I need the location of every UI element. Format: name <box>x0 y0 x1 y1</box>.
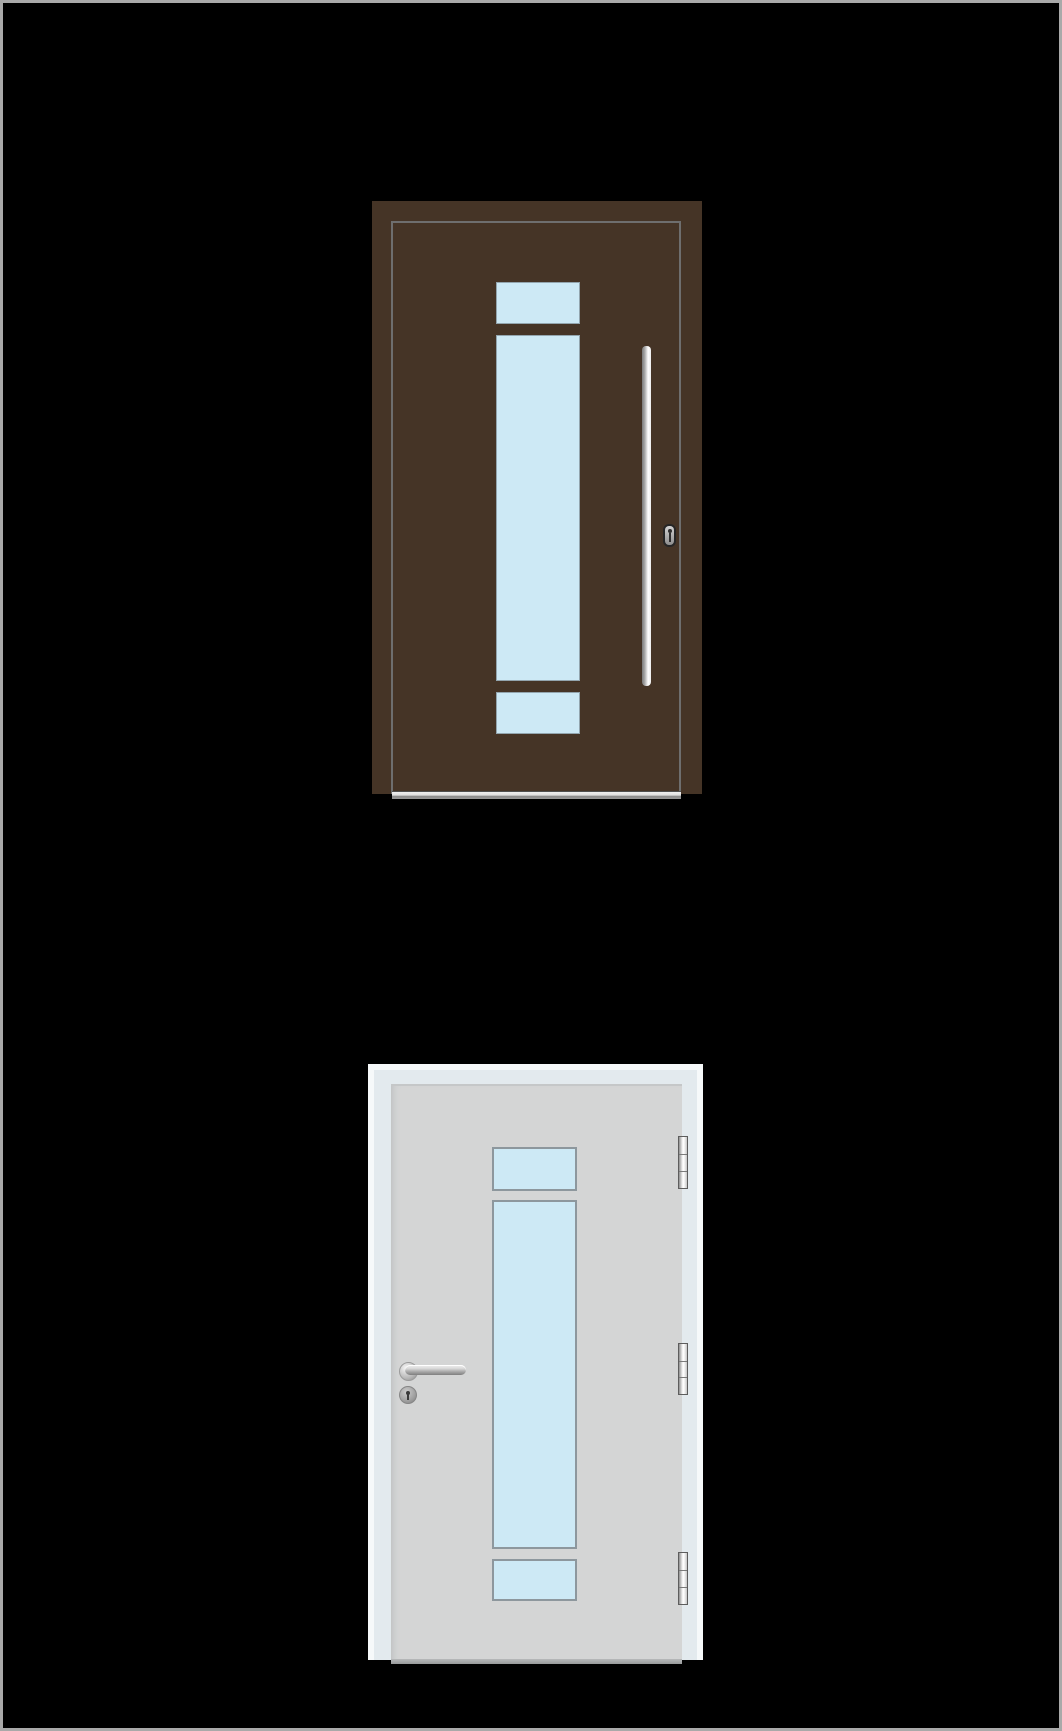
hinge <box>678 1552 688 1605</box>
hinge-knuckle-line <box>679 1361 687 1362</box>
glass-panel <box>496 692 580 734</box>
hinge <box>678 1136 688 1189</box>
glass-panel <box>492 1200 577 1549</box>
keyhole-slot-icon <box>407 1394 409 1400</box>
lever-handle <box>405 1365 466 1375</box>
interior-door-bottom-edge <box>391 1659 682 1664</box>
hinge-knuckle-line <box>679 1587 687 1588</box>
threshold-sill <box>392 791 681 799</box>
glass-panel <box>492 1147 577 1191</box>
keyhole-escutcheon <box>399 1386 417 1404</box>
glass-panel <box>496 335 580 681</box>
lock-cylinder <box>663 524 676 547</box>
illustration-canvas <box>0 0 1062 1731</box>
pull-bar-handle <box>642 346 651 686</box>
hinge-knuckle-line <box>679 1570 687 1571</box>
keyhole-slot-icon <box>669 533 671 542</box>
glass-panel <box>496 282 580 324</box>
hinge-knuckle-line <box>679 1154 687 1155</box>
hinge <box>678 1343 688 1395</box>
glass-panel <box>492 1559 577 1601</box>
hinge-knuckle-line <box>679 1377 687 1378</box>
hinge-knuckle-line <box>679 1171 687 1172</box>
